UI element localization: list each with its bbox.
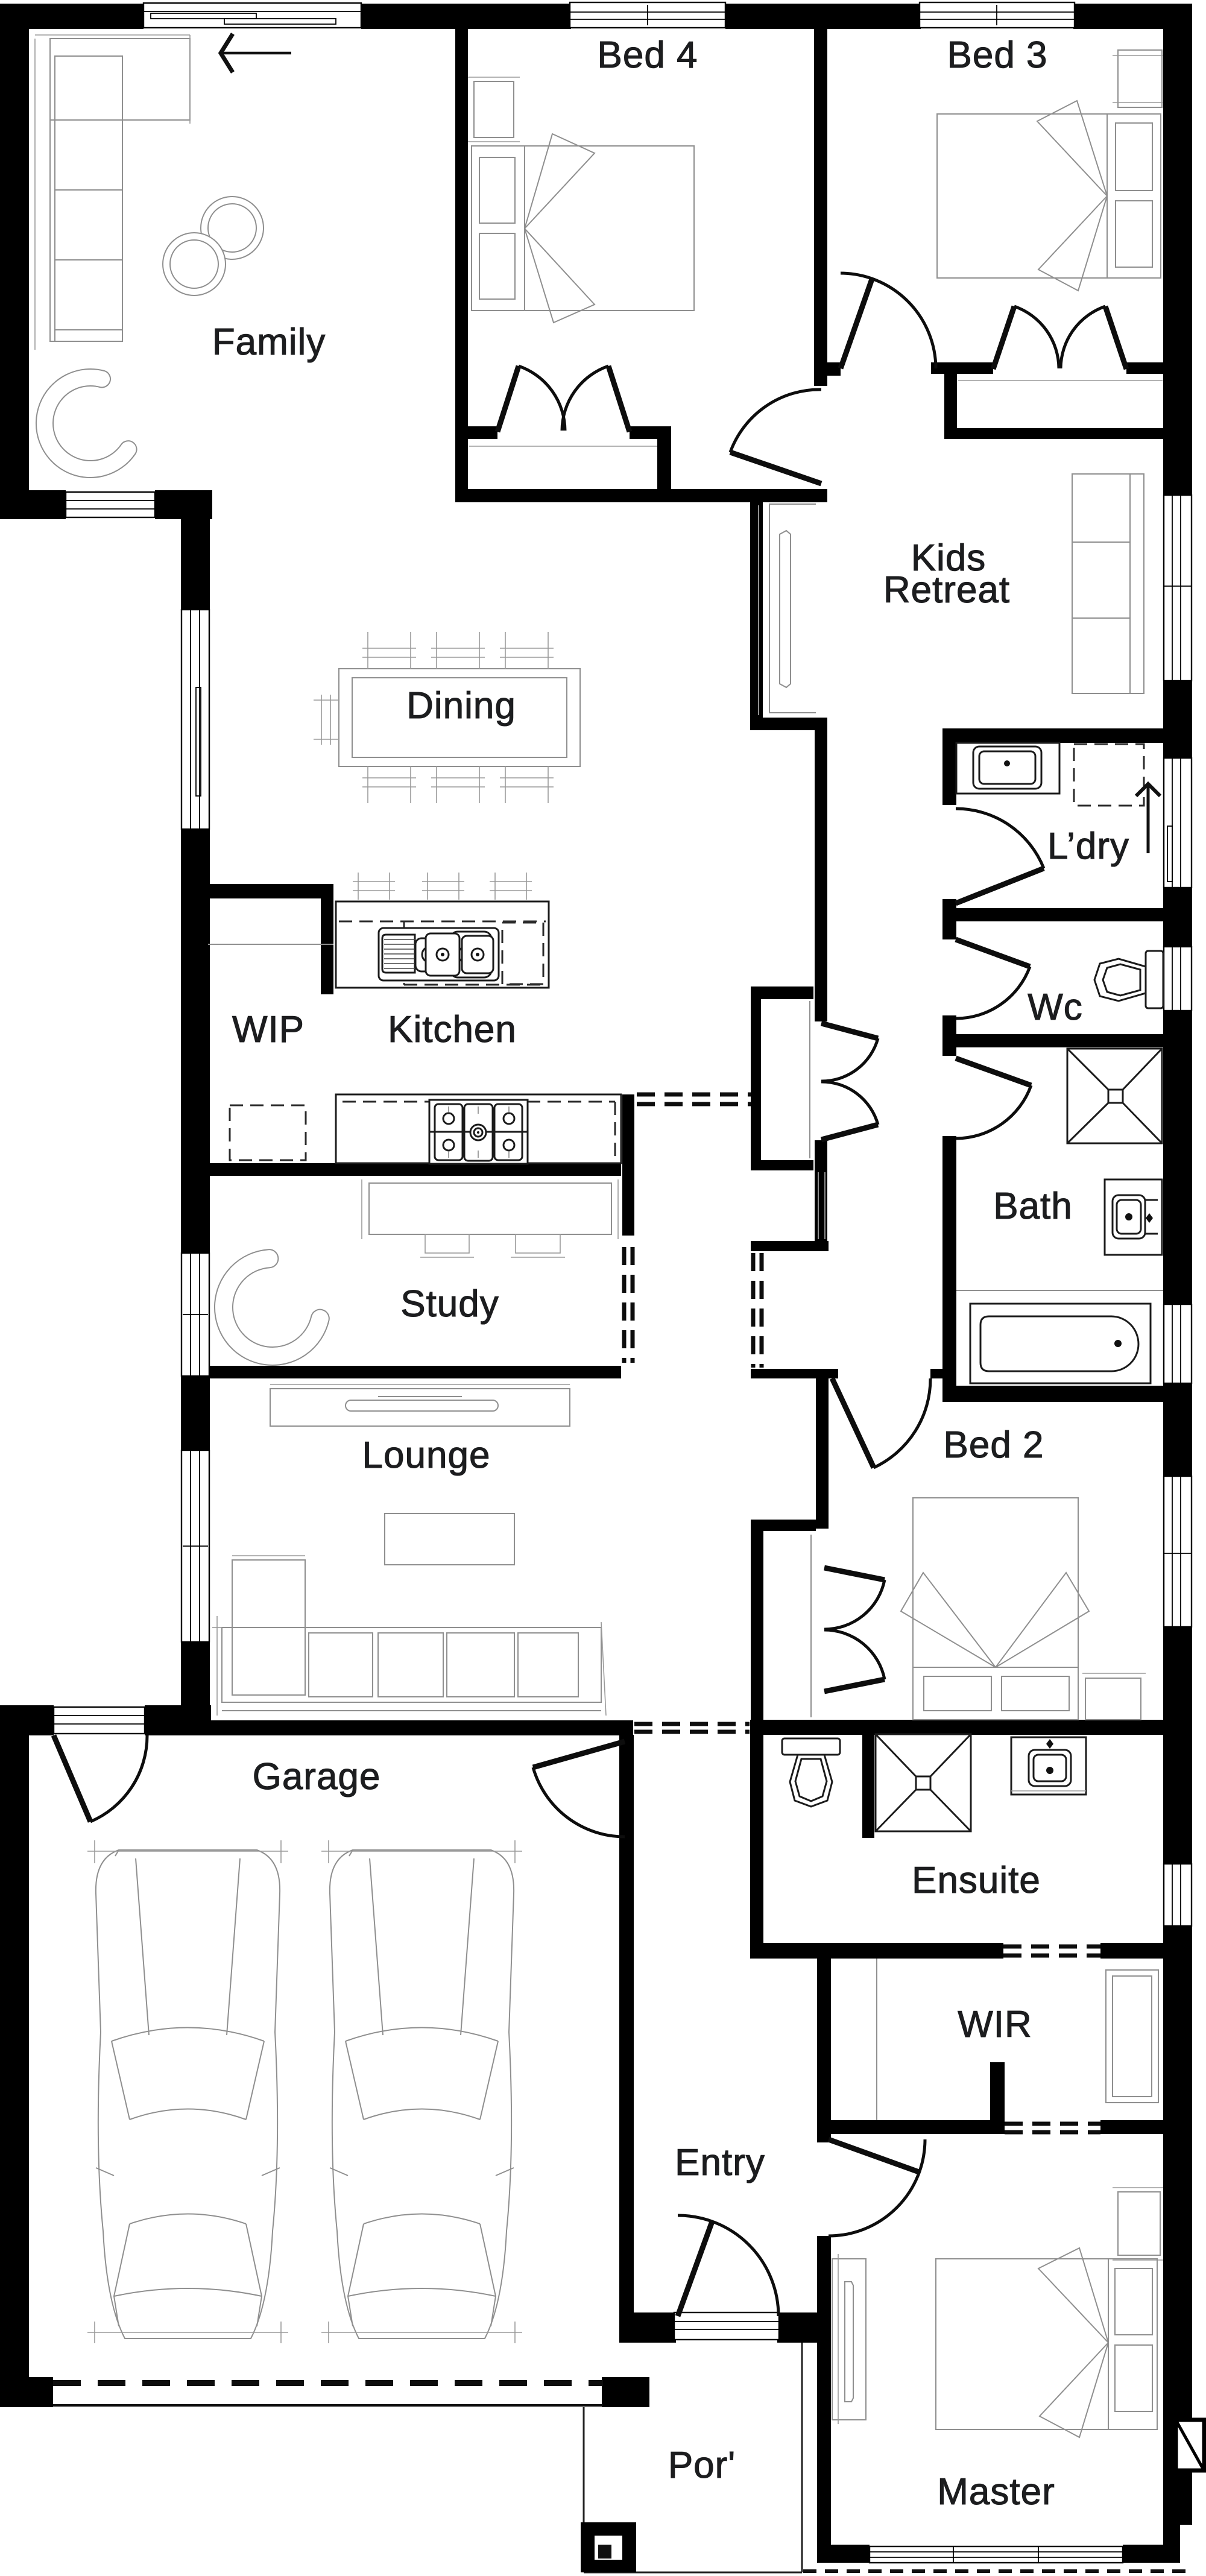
svg-text:Bath: Bath: [993, 1185, 1073, 1227]
svg-text:Garage: Garage: [253, 1756, 381, 1798]
svg-text:Entry: Entry: [675, 2142, 765, 2183]
svg-text:Retreat: Retreat: [883, 569, 1010, 611]
svg-text:Master: Master: [937, 2471, 1055, 2513]
svg-text:Wc: Wc: [1028, 987, 1083, 1028]
svg-text:Por': Por': [668, 2445, 736, 2486]
svg-text:Bed 4: Bed 4: [597, 34, 698, 76]
svg-text:Study: Study: [400, 1283, 499, 1325]
svg-text:Kitchen: Kitchen: [388, 1009, 517, 1050]
svg-text:Ensuite: Ensuite: [912, 1860, 1041, 1901]
svg-text:L’dry: L’dry: [1047, 826, 1129, 867]
svg-text:Dining: Dining: [406, 685, 516, 727]
svg-text:Lounge: Lounge: [362, 1435, 491, 1476]
svg-text:WIP: WIP: [232, 1009, 305, 1050]
svg-text:Bed 2: Bed 2: [943, 1424, 1044, 1466]
svg-text:Family: Family: [212, 321, 326, 363]
svg-text:Bed 3: Bed 3: [947, 34, 1047, 76]
svg-text:WIR: WIR: [958, 2004, 1032, 2045]
